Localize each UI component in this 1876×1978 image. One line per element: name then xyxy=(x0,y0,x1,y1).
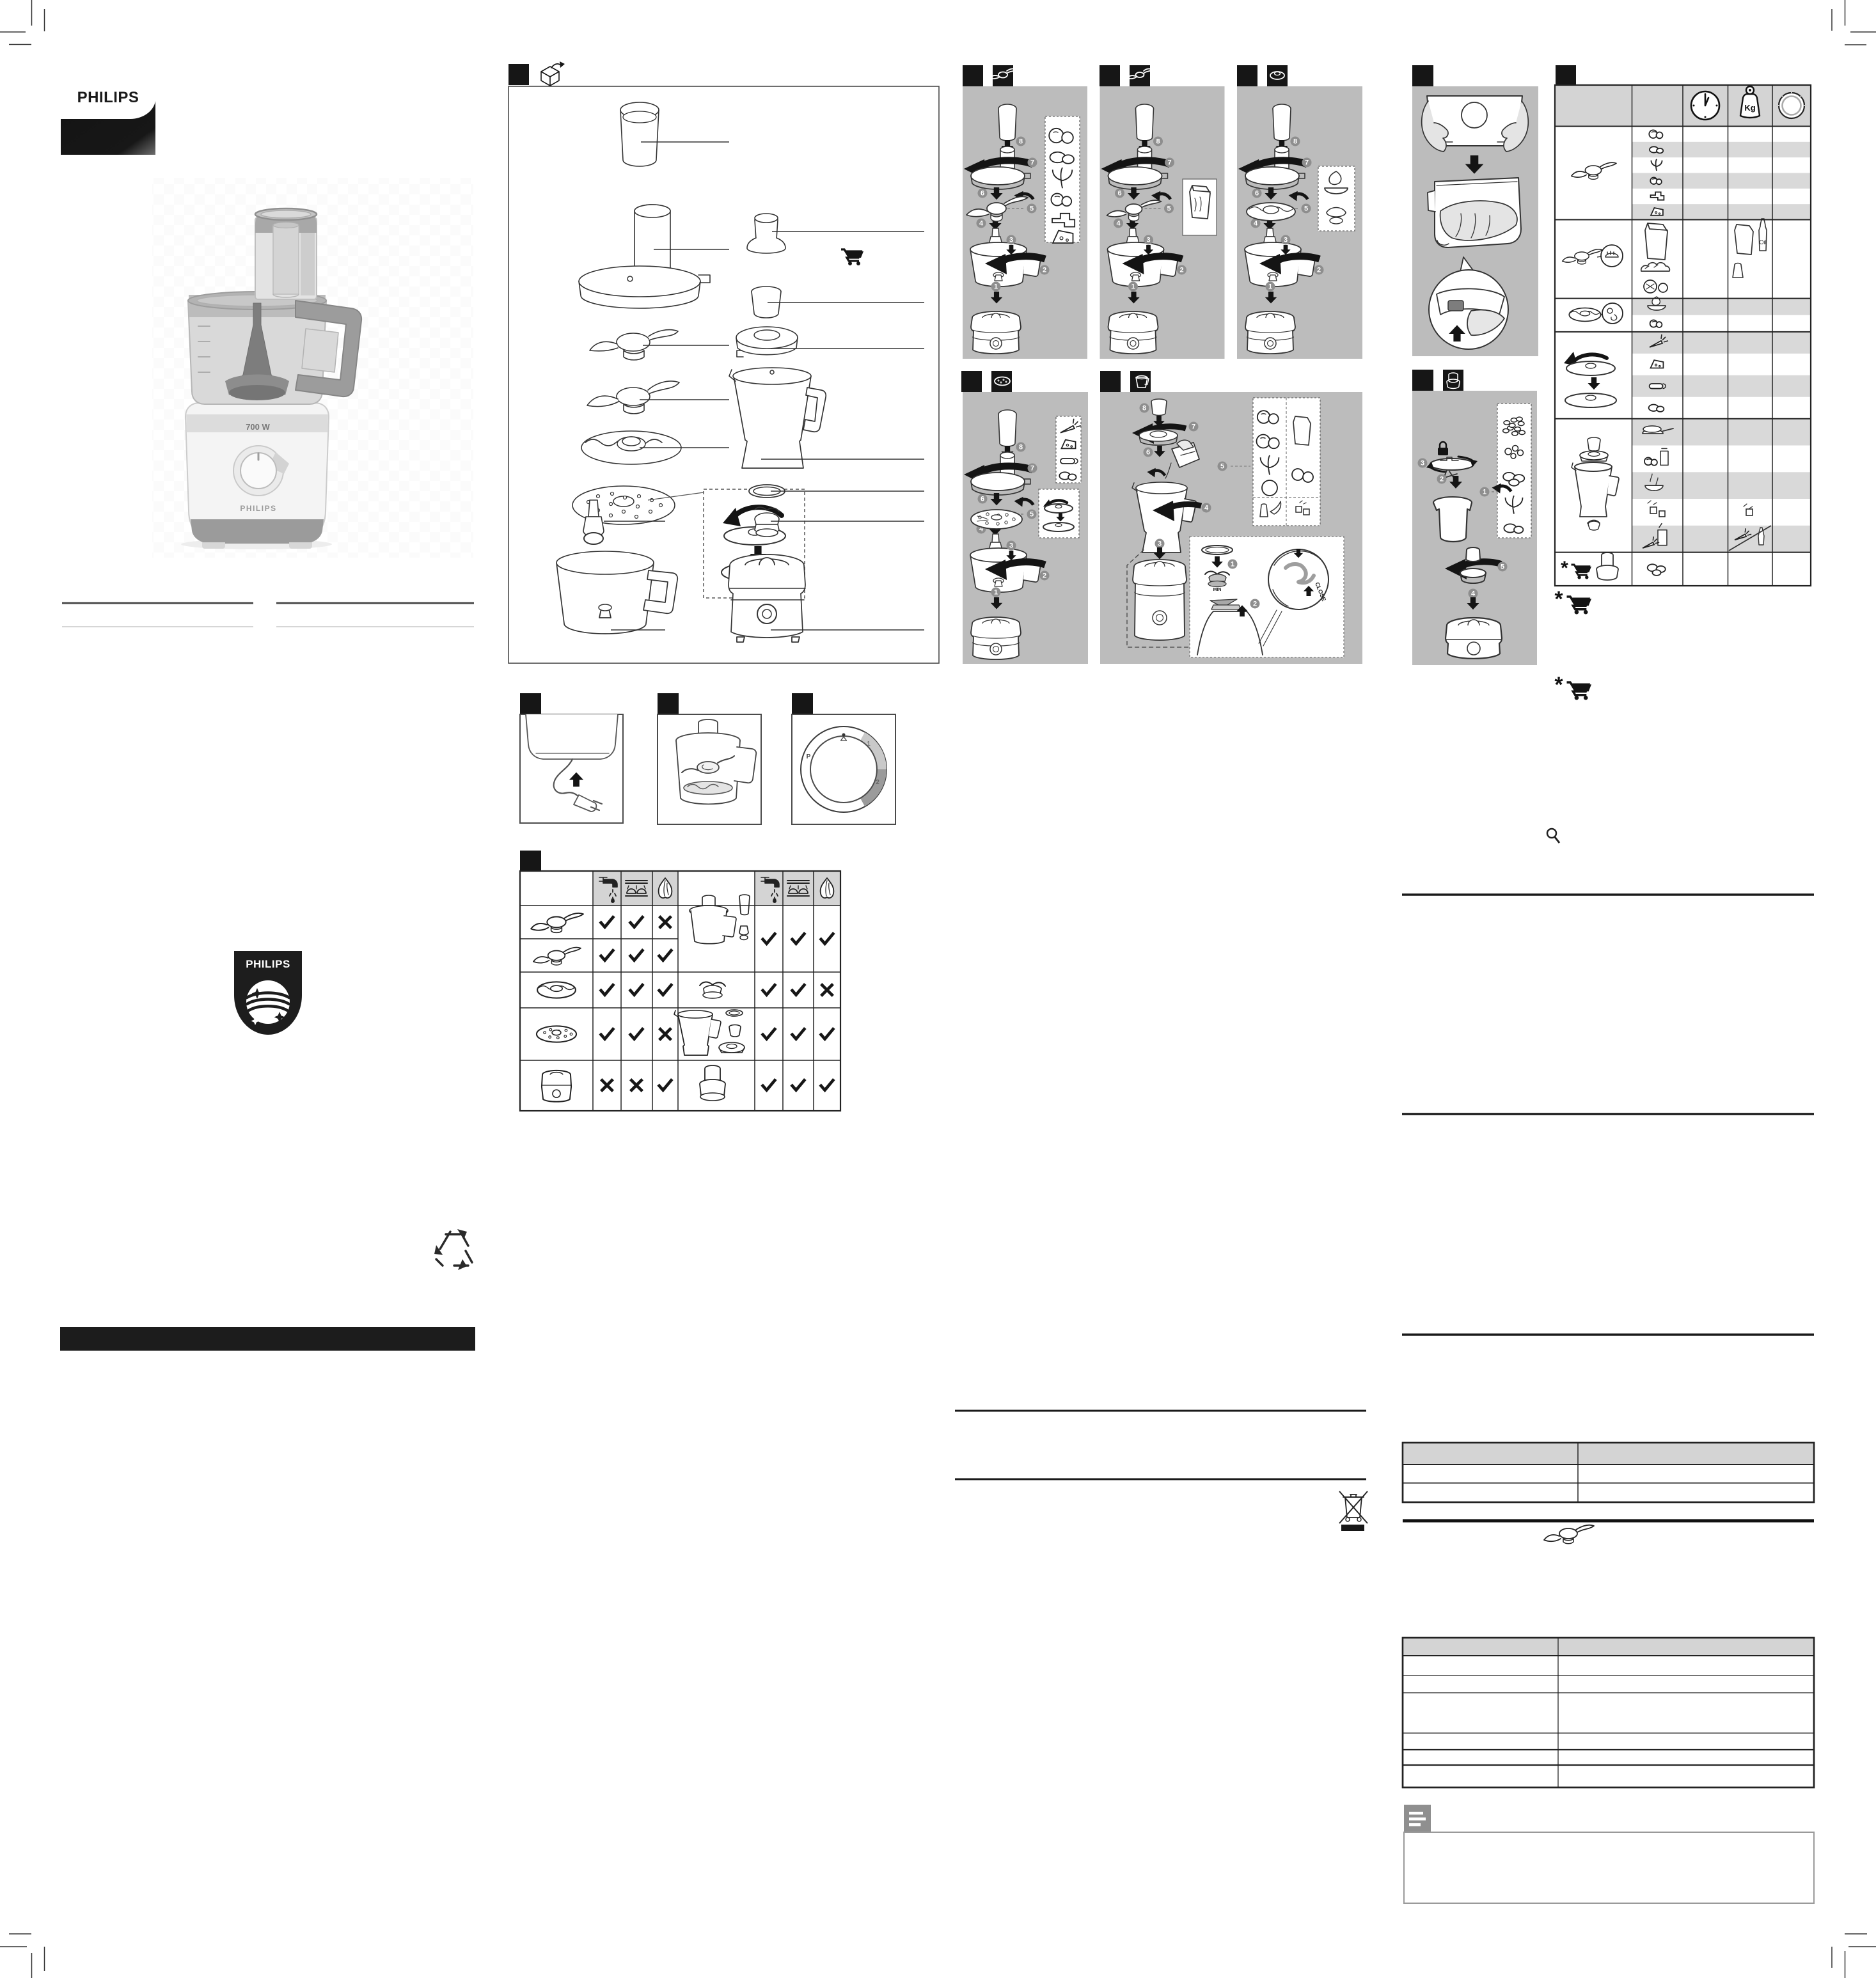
svg-text:5: 5 xyxy=(1167,205,1171,213)
svg-text:Kg: Kg xyxy=(1744,103,1755,113)
svg-text:1: 1 xyxy=(1483,489,1486,496)
svg-text:1: 1 xyxy=(1131,283,1135,291)
svg-text:1: 1 xyxy=(1268,283,1272,291)
svg-text:700 W: 700 W xyxy=(246,422,270,432)
svg-text:1: 1 xyxy=(1231,561,1234,569)
svg-text:3: 3 xyxy=(1421,460,1424,467)
svg-text:*: * xyxy=(1554,673,1563,697)
svg-text:1: 1 xyxy=(867,741,871,748)
svg-text:PHILIPS: PHILIPS xyxy=(77,89,139,106)
svg-text:5: 5 xyxy=(1220,463,1224,471)
svg-text:8: 8 xyxy=(1142,405,1146,412)
svg-text:2: 2 xyxy=(1043,267,1046,274)
svg-text:8: 8 xyxy=(1293,138,1297,146)
svg-text:8: 8 xyxy=(1156,138,1160,146)
svg-text:*: * xyxy=(1561,558,1568,579)
svg-text:5: 5 xyxy=(1304,205,1308,213)
svg-text:4: 4 xyxy=(979,220,984,228)
svg-text:Oil: Oil xyxy=(1760,239,1767,246)
svg-text:3: 3 xyxy=(1009,542,1013,550)
svg-text:6: 6 xyxy=(1117,190,1121,198)
svg-text:7: 7 xyxy=(1030,465,1034,473)
svg-text:7: 7 xyxy=(1305,159,1309,167)
svg-text:8: 8 xyxy=(1019,138,1023,146)
svg-text:6: 6 xyxy=(1255,190,1259,198)
svg-text:1: 1 xyxy=(994,589,998,597)
svg-text:*: * xyxy=(1554,587,1563,611)
svg-text:2: 2 xyxy=(1179,267,1183,274)
svg-text:3: 3 xyxy=(1146,237,1150,244)
svg-text:2: 2 xyxy=(1317,267,1321,274)
svg-text:P: P xyxy=(807,753,811,760)
svg-text:7: 7 xyxy=(1192,423,1195,431)
svg-text:5: 5 xyxy=(1501,563,1504,571)
svg-text:5: 5 xyxy=(1030,205,1034,213)
svg-text:2: 2 xyxy=(876,779,879,786)
svg-text:3: 3 xyxy=(1009,237,1013,244)
svg-text:3: 3 xyxy=(1158,540,1162,548)
svg-text:PHILIPS: PHILIPS xyxy=(246,958,290,970)
svg-text:4: 4 xyxy=(1204,505,1209,512)
svg-text:MIN: MIN xyxy=(1213,588,1222,592)
svg-text:PHILIPS: PHILIPS xyxy=(240,504,276,513)
svg-text:1: 1 xyxy=(994,283,998,291)
svg-text:4: 4 xyxy=(1116,220,1121,228)
svg-text:8: 8 xyxy=(1019,444,1023,451)
svg-text:6: 6 xyxy=(981,190,984,198)
svg-text:3: 3 xyxy=(1284,237,1288,244)
svg-text:4: 4 xyxy=(1254,220,1258,228)
svg-text:2: 2 xyxy=(1253,600,1257,608)
svg-text:6: 6 xyxy=(1146,449,1150,457)
svg-text:5: 5 xyxy=(1030,511,1034,519)
svg-text:7: 7 xyxy=(1030,159,1034,167)
svg-text:7: 7 xyxy=(1167,159,1171,167)
svg-text:4: 4 xyxy=(1471,590,1476,598)
svg-text:2: 2 xyxy=(1043,572,1046,580)
svg-text:6: 6 xyxy=(981,496,984,503)
svg-text:2: 2 xyxy=(1440,476,1444,483)
